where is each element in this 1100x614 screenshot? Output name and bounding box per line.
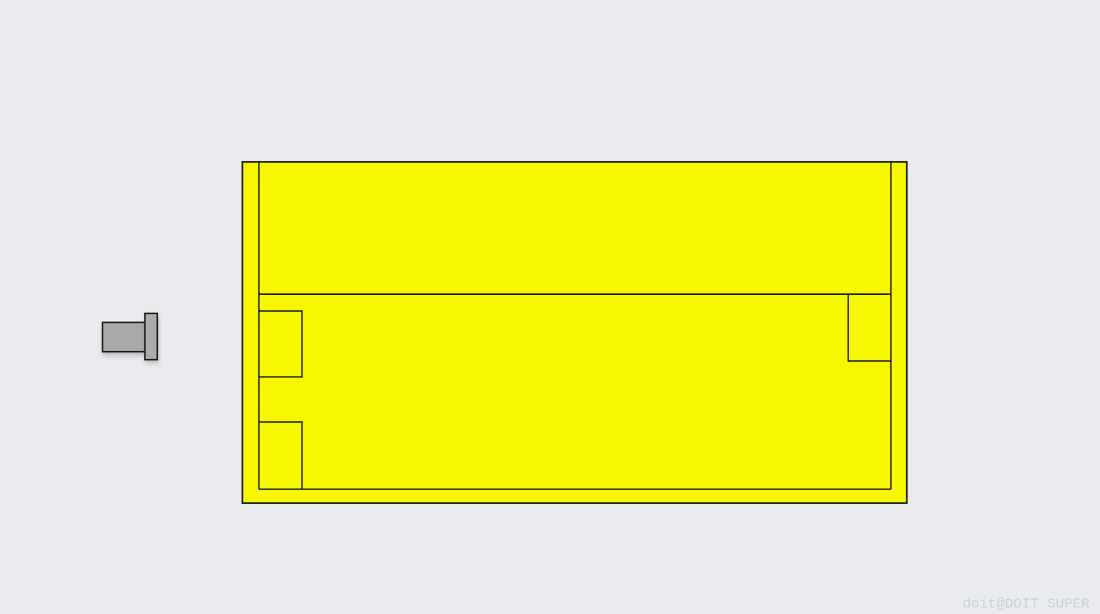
svg-text:doit@DOIT SUPER: doit@DOIT SUPER xyxy=(963,597,1090,613)
